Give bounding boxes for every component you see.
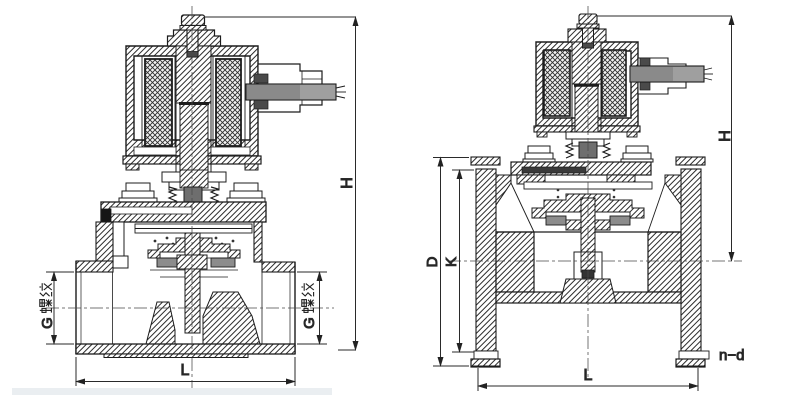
svg-text:D: D — [424, 256, 441, 267]
svg-text:n−d: n−d — [719, 347, 744, 364]
svg-text:L: L — [181, 362, 190, 379]
svg-text:H: H — [339, 177, 356, 189]
svg-text:L: L — [584, 367, 593, 384]
svg-text:K: K — [443, 257, 460, 267]
svg-text:H: H — [717, 130, 734, 142]
svg-text:G: G — [39, 317, 56, 329]
svg-text:G: G — [301, 317, 318, 329]
